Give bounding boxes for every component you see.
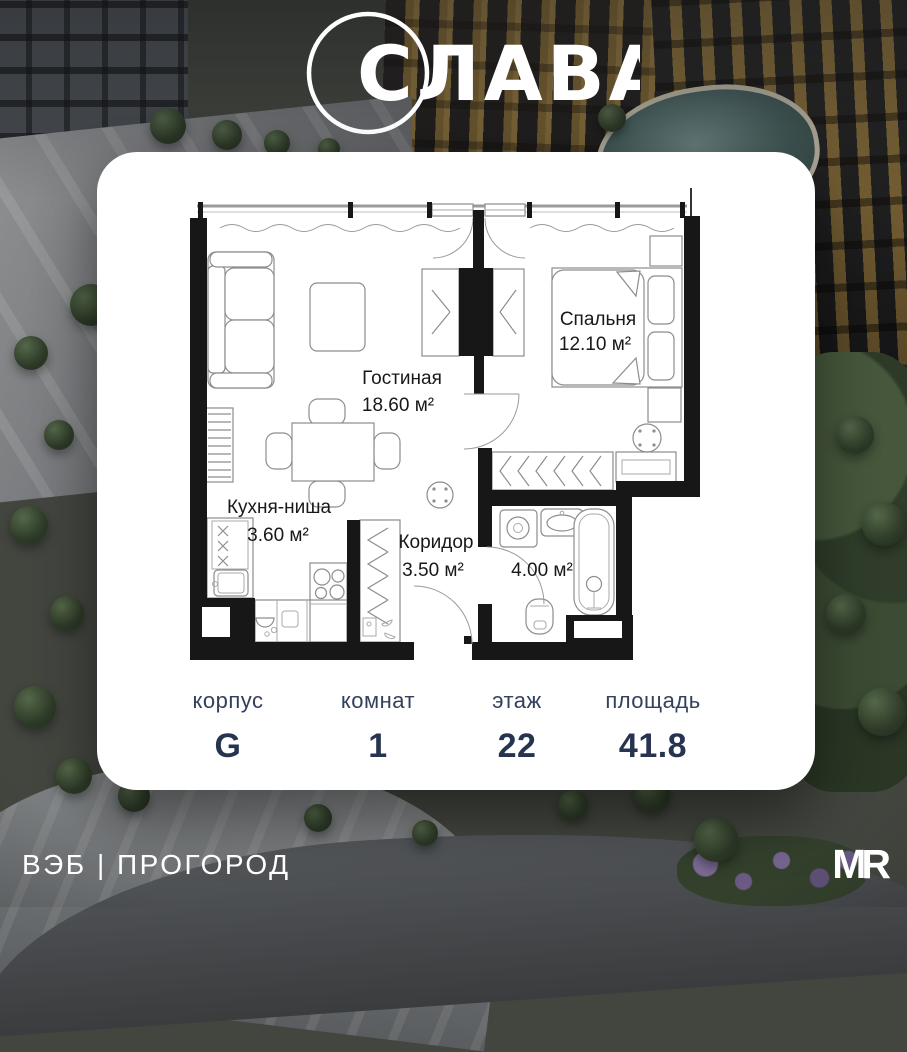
bedroom-furniture [492, 236, 682, 490]
stat-area: площадь 41.8 [605, 688, 700, 766]
room-bathroom-area: 4.00 м² [511, 560, 573, 581]
room-bedroom-name: Спальня [560, 309, 636, 330]
stat-rooms-label: комнат [341, 688, 415, 714]
curtain-lines [220, 225, 674, 232]
stat-rooms-value: 1 [341, 727, 415, 766]
stat-floor: этаж 22 [492, 688, 542, 766]
stat-area-value: 41.8 [605, 727, 700, 766]
stat-floor-value: 22 [492, 727, 542, 766]
room-bedroom-area: 12.10 м² [559, 334, 631, 355]
room-living-name: Гостиная [362, 368, 442, 389]
corridor-fixtures [360, 520, 400, 642]
developer-logo: ВЭБ | ПРОГОРОД [22, 849, 291, 881]
room-corridor-name: Коридор [398, 532, 473, 553]
stat-floor-label: этаж [492, 688, 542, 714]
stat-rooms: комнат 1 [341, 688, 415, 766]
logo-title: СЛАВА [357, 29, 640, 118]
stat-area-label: площадь [605, 688, 700, 714]
room-kitchen-name: Кухня-ниша [227, 497, 332, 518]
floor-plan: Гостиная 18.60 м² Спальня 12.10 м² Кухня… [170, 180, 732, 682]
stat-building-value: G [192, 727, 263, 766]
stat-building: корпус G [192, 688, 263, 766]
mr-group-logo: MR [832, 841, 886, 888]
floorplan-card: Гостиная 18.60 м² Спальня 12.10 м² Кухня… [97, 152, 815, 790]
stat-building-label: корпус [192, 688, 263, 714]
project-logo: СЛАВА [280, 4, 640, 144]
window-wall [197, 188, 691, 258]
room-corridor-area: 3.50 м² [402, 560, 464, 581]
room-living-area: 18.60 м² [362, 395, 434, 416]
room-kitchen-area: 3.60 м² [247, 525, 309, 546]
